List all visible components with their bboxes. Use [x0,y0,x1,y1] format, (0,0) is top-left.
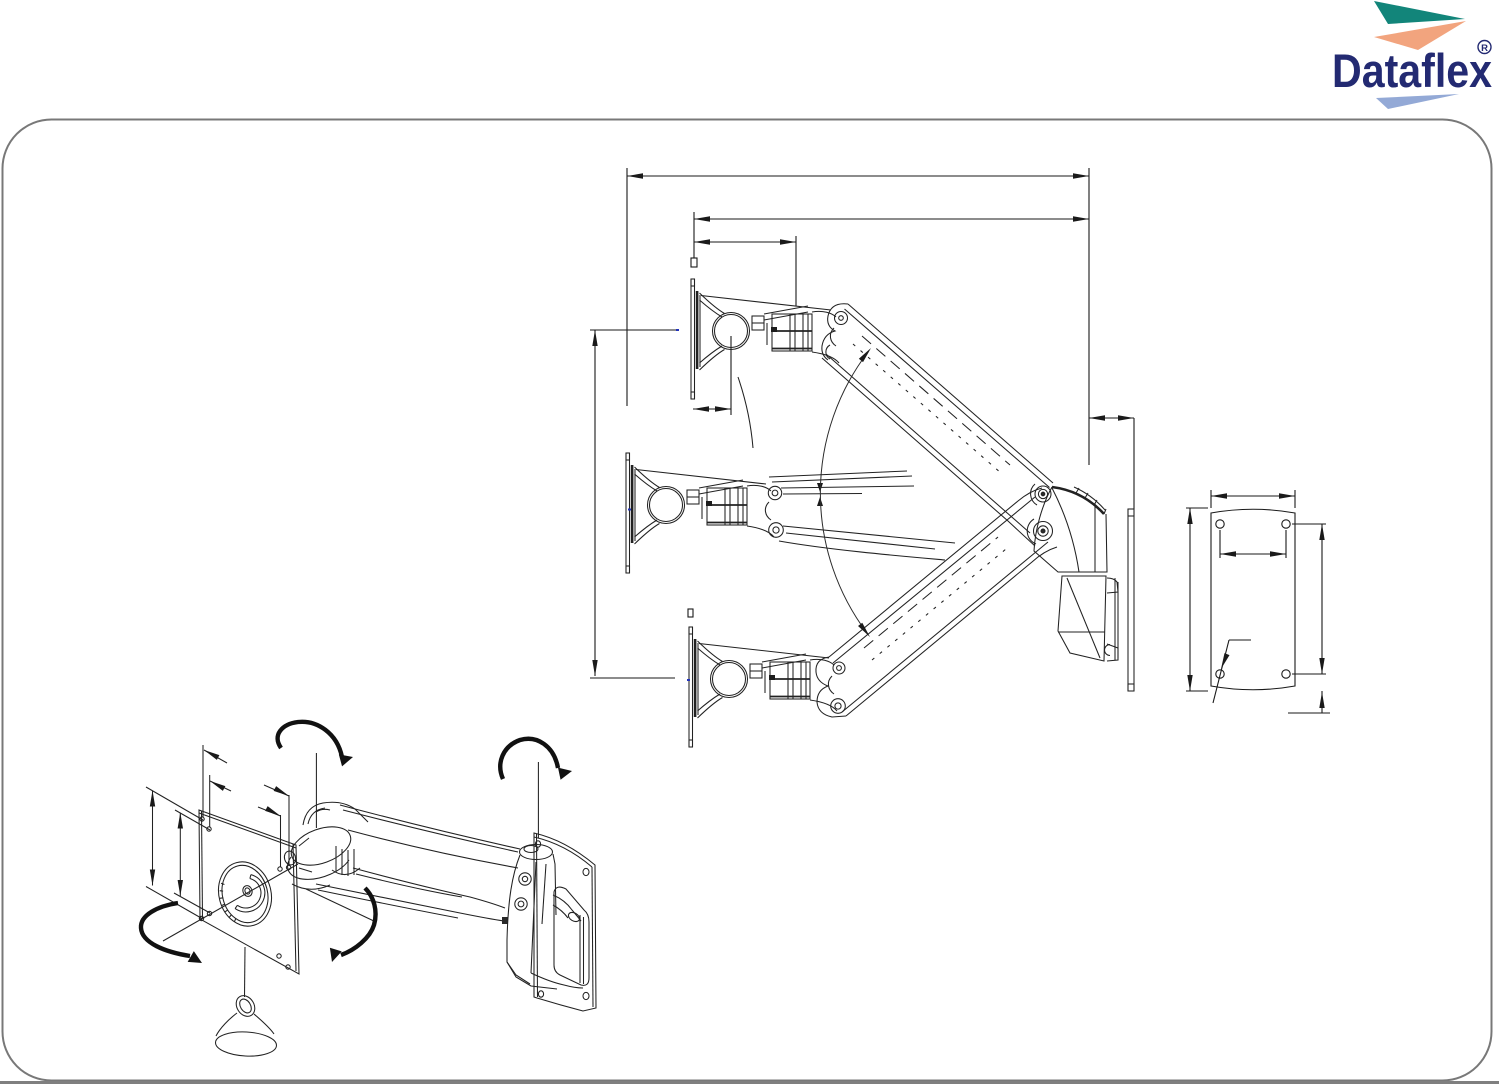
svg-text:R: R [1481,43,1488,54]
svg-text:Dataflex: Dataflex [1332,44,1492,97]
